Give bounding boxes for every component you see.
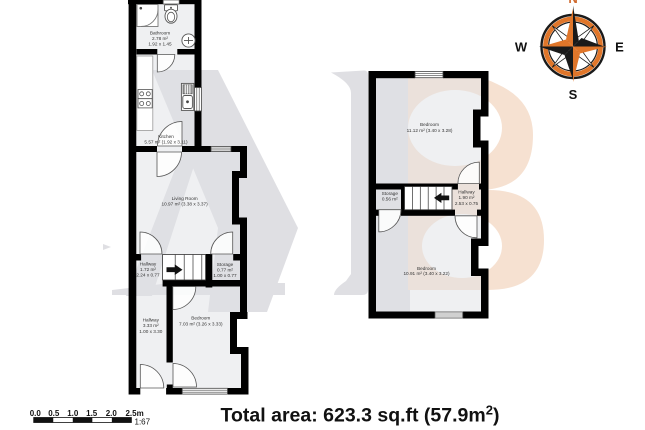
svg-text:2.78 m²: 2.78 m²	[152, 36, 168, 41]
svg-text:1.90 m²: 1.90 m²	[459, 195, 475, 200]
svg-text:N: N	[568, 0, 577, 6]
svg-text:1.72 m²: 1.72 m²	[140, 267, 156, 272]
svg-text:E: E	[615, 40, 624, 55]
svg-text:Storage: Storage	[217, 262, 234, 267]
svg-text:1.00 x 3.30: 1.00 x 3.30	[139, 329, 163, 334]
svg-text:Kitchen: Kitchen	[158, 134, 174, 139]
svg-text:1.5: 1.5	[86, 409, 98, 418]
svg-text:1:67: 1:67	[135, 418, 151, 427]
svg-text:0.56 m²: 0.56 m²	[382, 197, 398, 202]
svg-text:Hallway: Hallway	[458, 190, 475, 195]
svg-text:5.57 m² (1.92 x 3.11): 5.57 m² (1.92 x 3.11)	[144, 139, 188, 144]
svg-text:2.24 x 0.77: 2.24 x 0.77	[136, 272, 160, 277]
svg-text:Bedroom: Bedroom	[417, 266, 436, 271]
svg-text:10.91 m² (3.40 x 3.22): 10.91 m² (3.40 x 3.22)	[403, 271, 450, 276]
svg-text:2.53 x 0.75: 2.53 x 0.75	[455, 201, 479, 206]
svg-text:11.12 m² (3.40 x 3.28): 11.12 m² (3.40 x 3.28)	[407, 128, 453, 133]
svg-text:Total area: 623.3 sq.ft (57.9m: Total area: 623.3 sq.ft (57.9m2)	[221, 403, 500, 427]
svg-text:W: W	[515, 39, 528, 54]
svg-text:10.97 m² (3.38 x 3.37): 10.97 m² (3.38 x 3.37)	[162, 202, 209, 207]
svg-text:0.5: 0.5	[48, 409, 60, 418]
svg-text:3.33 m²: 3.33 m²	[143, 323, 159, 328]
svg-text:Bedroom: Bedroom	[420, 122, 439, 127]
svg-text:Living Room: Living Room	[172, 196, 198, 201]
svg-text:1.00 x 0.77: 1.00 x 0.77	[213, 273, 237, 278]
svg-text:Bedroom: Bedroom	[191, 316, 210, 321]
svg-text:Hallway: Hallway	[140, 261, 157, 266]
svg-text:1.0: 1.0	[67, 409, 79, 418]
svg-text:Hallway: Hallway	[143, 318, 160, 323]
svg-text:7.03 m² (3.26 x 3.33): 7.03 m² (3.26 x 3.33)	[179, 321, 223, 326]
svg-text:Storage: Storage	[382, 191, 399, 196]
svg-text:2.0: 2.0	[106, 409, 118, 418]
svg-text:0.77 m²: 0.77 m²	[217, 267, 233, 272]
svg-text:0.0: 0.0	[30, 409, 42, 418]
svg-text:S: S	[569, 87, 578, 102]
svg-text:Bathroom: Bathroom	[150, 31, 170, 36]
svg-text:1.92 x 1.45: 1.92 x 1.45	[148, 42, 172, 47]
